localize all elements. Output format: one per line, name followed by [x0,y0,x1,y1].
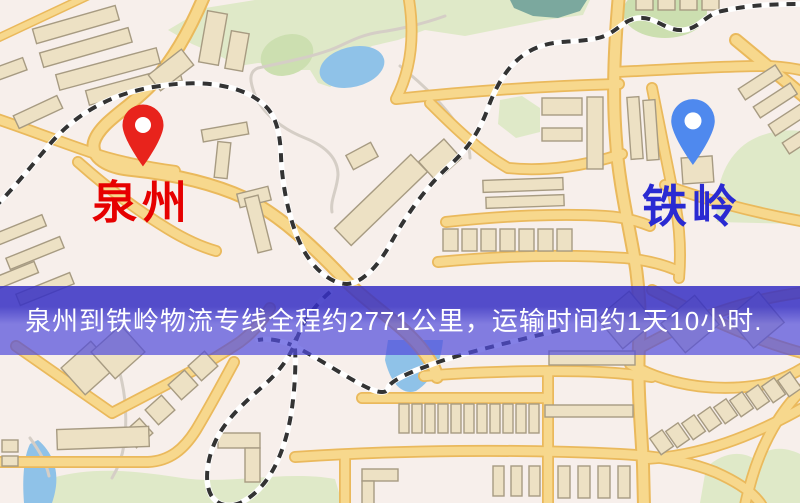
map-background [0,0,800,503]
destination-city-label: 铁岭 [642,184,742,229]
route-info-text: 泉州到铁岭物流专线全程约2771公里，运输时间约1天10小时. [0,308,762,334]
route-info-banner: 泉州到铁岭物流专线全程约2771公里，运输时间约1天10小时. [0,286,800,355]
logistics-route-map: 泉州 铁岭 泉州到铁岭物流专线全程约2771公里，运输时间约1天10小时. [0,0,800,503]
origin-city-label: 泉州 [92,180,192,225]
